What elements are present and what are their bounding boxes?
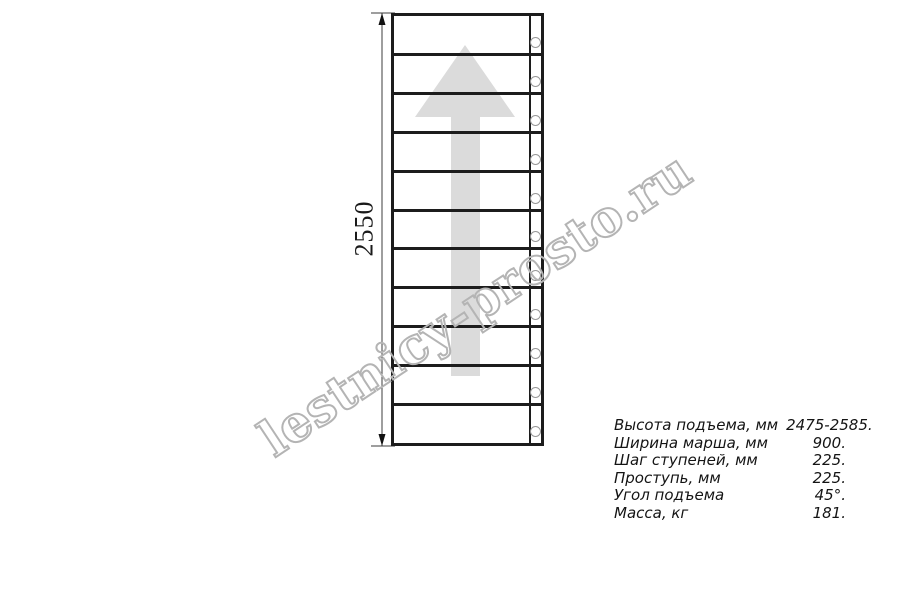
baluster-bolt-circle <box>530 115 541 126</box>
spec-label: Угол подъема <box>614 487 724 505</box>
staircase-flight-outline <box>391 13 544 446</box>
spec-value: 225. <box>805 452 846 470</box>
spec-label: Высота подъема, мм <box>614 417 778 435</box>
baluster-bolt-circle <box>530 193 541 204</box>
dimension-arrow-up-icon <box>379 13 386 25</box>
spec-row: Масса, кг181. <box>614 505 846 523</box>
baluster-bolt-circle <box>530 76 541 87</box>
step-divider-line <box>394 170 541 173</box>
dimension-arrow-down-icon <box>379 434 386 446</box>
spec-value: 181. <box>805 505 846 523</box>
step-divider-line <box>394 209 541 212</box>
baluster-bolt-circle <box>530 348 541 359</box>
spec-label: Масса, кг <box>614 505 688 523</box>
baluster-bolt-circle <box>530 37 541 48</box>
technical-drawing-canvas: 2550 lestnicy-prosto.ru Высота подъема, … <box>0 0 900 600</box>
baluster-bolt-circle <box>530 309 541 320</box>
step-divider-line <box>394 403 541 406</box>
spec-row: Проступь, мм225. <box>614 470 846 488</box>
baluster-bolt-circle <box>530 426 541 437</box>
step-divider-line <box>394 53 541 56</box>
baluster-bolt-circle <box>530 154 541 165</box>
spec-label: Шаг ступеней, мм <box>614 452 758 470</box>
spec-value: 45°. <box>807 487 846 505</box>
spec-value: 225. <box>805 470 846 488</box>
baluster-bolt-circle <box>530 387 541 398</box>
spec-value: 2475-2585. <box>778 417 873 435</box>
spec-row: Угол подъема45°. <box>614 487 846 505</box>
dimension-value-label: 2550 <box>351 194 378 264</box>
spec-row: Ширина марша, мм900. <box>614 435 846 453</box>
spec-row: Высота подъема, мм2475-2585. <box>614 417 846 435</box>
step-divider-line <box>394 92 541 95</box>
spec-label: Проступь, мм <box>614 470 721 488</box>
specification-list: Высота подъема, мм2475-2585.Ширина марша… <box>614 417 846 522</box>
spec-value: 900. <box>805 435 846 453</box>
step-divider-line <box>394 131 541 134</box>
spec-label: Ширина марша, мм <box>614 435 768 453</box>
spec-row: Шаг ступеней, мм225. <box>614 452 846 470</box>
